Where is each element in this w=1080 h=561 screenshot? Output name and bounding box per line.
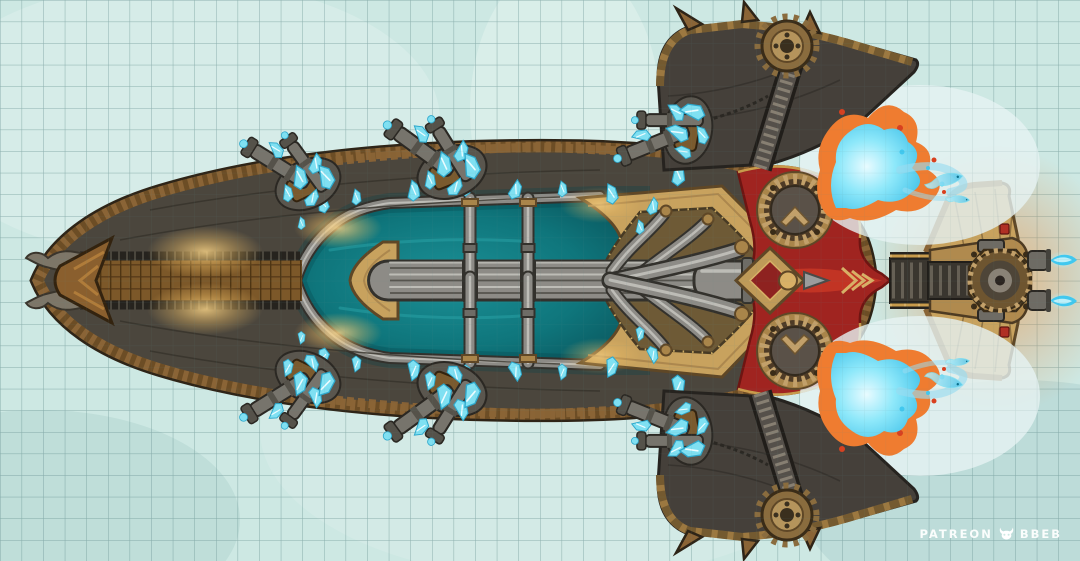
watermark-brand: PATREON [920, 527, 993, 541]
battlemap-canvas [0, 0, 1080, 561]
watermark-name: BBEB [1020, 527, 1062, 541]
battlemap: PATREON BBEB [0, 0, 1080, 561]
grid-overlay [0, 0, 1080, 561]
watermark: PATREON BBEB [920, 527, 1063, 541]
horned-skull-icon [999, 527, 1014, 541]
